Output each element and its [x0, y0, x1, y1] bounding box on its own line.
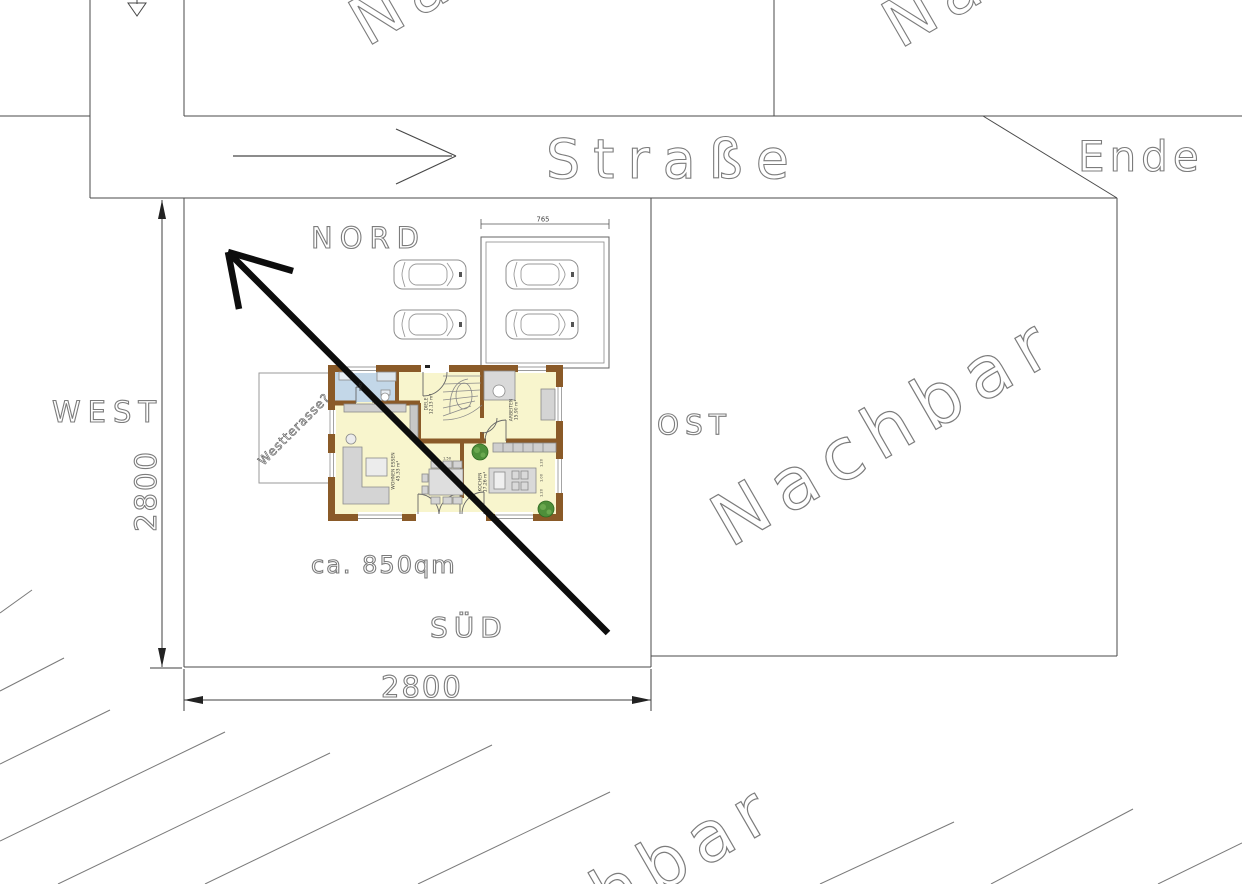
site-plan: Straße Ende NORD WEST OST SÜD Nachbar Na… — [0, 0, 1242, 884]
compass-south-label: SÜD — [430, 611, 508, 644]
plot-width-dim-label: 2800 — [381, 670, 463, 704]
room-label-wohnen-essen: WOHNEN ESSEN 45.33 m² — [391, 452, 401, 489]
parcel-boundaries — [0, 0, 1242, 667]
compass-east-label: OST — [657, 408, 732, 441]
compass-west-label: WEST — [52, 395, 163, 429]
dim-label-right-mid: 1.00 — [540, 474, 544, 482]
dim-label-door: 1.50 — [443, 457, 451, 461]
street-label: Straße — [546, 128, 802, 191]
room-label-bad: BAD — [359, 383, 363, 391]
room-label-diele: DIELE 12.13 m² — [424, 394, 434, 415]
street-right-arrow-icon — [233, 129, 456, 184]
carport-width-dim-label: 765 — [537, 216, 550, 224]
dim-label-right-bottom: 1.20 — [540, 489, 544, 497]
street-end-label: Ende — [1078, 132, 1204, 181]
carport — [481, 219, 609, 368]
plot-area-label: ca. 850qm — [311, 551, 457, 579]
dim-label-right-top: 1.20 — [540, 459, 544, 467]
room-label-kochen: KOCHEN 17.26 m² — [478, 472, 488, 493]
street-down-arrow-icon — [128, 0, 146, 16]
compass-north-label: NORD — [311, 221, 426, 255]
room-label-arbeiten: ARBEITEN 15.90 m² — [509, 399, 519, 421]
plot-depth-dim-label: 2800 — [129, 450, 163, 532]
